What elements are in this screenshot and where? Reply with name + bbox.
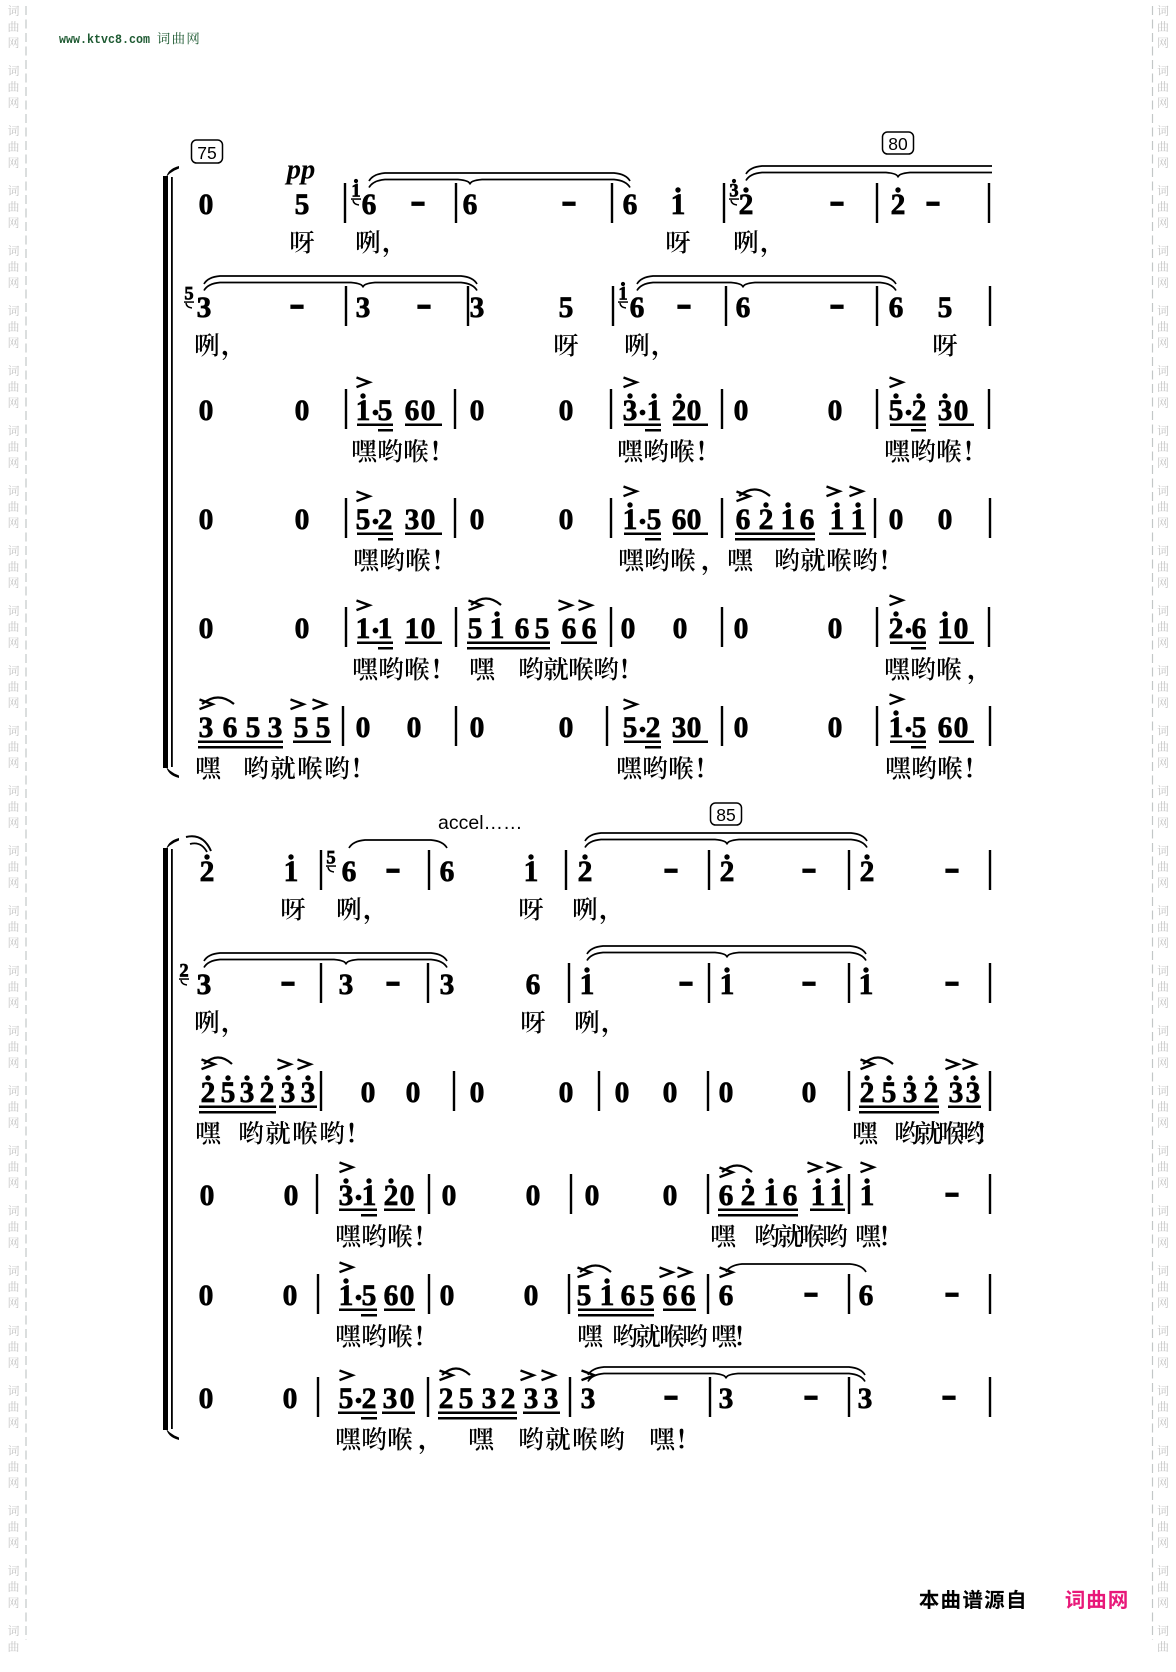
svg-text:1: 1 [764,1180,779,1212]
svg-text:1: 1 [362,1180,377,1212]
svg-text:3: 3 [383,1383,398,1415]
svg-text:3: 3 [268,712,283,744]
svg-text:accel……: accel…… [438,812,523,834]
svg-text:3: 3 [903,1077,918,1109]
svg-text:0: 0 [421,613,436,645]
svg-text:0: 0 [687,504,702,536]
svg-text:0: 0 [954,712,969,744]
svg-text:0: 0 [734,613,749,645]
svg-text:6: 6 [681,1280,696,1312]
svg-text:5: 5 [294,712,309,744]
svg-text:0: 0 [828,613,843,645]
svg-text:3: 3 [524,1383,539,1415]
svg-text:5: 5 [623,712,638,744]
svg-text:5: 5 [316,712,331,744]
svg-text:2: 2 [912,395,927,427]
svg-text:0: 0 [199,395,214,427]
svg-text:1: 1 [623,504,638,536]
svg-text:1: 1 [284,856,299,888]
svg-text:6: 6 [800,504,815,536]
svg-text:5: 5 [468,613,483,645]
svg-text:6: 6 [526,969,541,1001]
svg-text:3: 3 [858,1383,873,1415]
svg-text:1: 1 [647,395,662,427]
svg-text:0: 0 [283,1383,298,1415]
svg-text:5: 5 [938,292,953,324]
svg-text:0: 0 [470,1077,485,1109]
svg-text:3: 3 [301,1077,316,1109]
svg-text:0: 0 [559,712,574,744]
svg-text:5: 5 [339,1383,354,1415]
svg-text:0: 0 [673,613,688,645]
svg-text:3: 3 [281,1077,296,1109]
svg-text:1: 1 [889,712,904,744]
svg-text:2: 2 [646,712,661,744]
svg-text:3: 3 [719,1383,734,1415]
svg-text:0: 0 [585,1180,600,1212]
svg-text:85: 85 [716,805,735,825]
svg-text:1: 1 [378,613,393,645]
svg-text:6: 6 [630,292,645,324]
svg-text:0: 0 [199,189,214,221]
svg-text:2: 2 [924,1077,939,1109]
svg-text:0: 0 [440,1280,455,1312]
svg-text:0: 0 [421,504,436,536]
svg-text:www.ktvc8.com: www.ktvc8.com [59,33,150,47]
svg-text:0: 0 [199,1383,214,1415]
svg-text:5: 5 [912,712,927,744]
svg-text:1: 1 [859,969,874,1001]
svg-text:5: 5 [559,292,574,324]
svg-text:6: 6 [859,1280,874,1312]
svg-text:0: 0 [719,1077,734,1109]
svg-text:2: 2 [362,1383,377,1415]
svg-text:2: 2 [891,189,906,221]
svg-text:2: 2 [260,1077,275,1109]
svg-text:3: 3 [405,504,420,536]
svg-text:5: 5 [882,1077,897,1109]
svg-text:3: 3 [938,395,953,427]
svg-text:0: 0 [734,395,749,427]
svg-text:2: 2 [378,504,393,536]
svg-text:3: 3 [339,969,354,1001]
svg-text:1: 1 [938,613,953,645]
svg-text:0: 0 [615,1077,630,1109]
svg-text:0: 0 [295,395,310,427]
svg-text:2: 2 [759,504,774,536]
svg-text:1: 1 [811,1180,826,1212]
svg-text:6: 6 [621,1280,636,1312]
svg-text:1: 1 [600,1280,615,1312]
svg-text:3: 3 [356,292,371,324]
svg-text:3: 3 [197,292,212,324]
svg-text:5: 5 [577,1280,592,1312]
svg-text:6: 6 [912,613,927,645]
svg-text:0: 0 [734,712,749,744]
svg-text:0: 0 [200,1180,215,1212]
svg-text:3: 3 [966,1077,981,1109]
svg-text:1: 1 [405,613,420,645]
svg-text:0: 0 [283,1280,298,1312]
svg-text:0: 0 [663,1180,678,1212]
svg-text:6: 6 [672,504,687,536]
svg-text:3: 3 [623,395,638,427]
svg-text:0: 0 [889,504,904,536]
svg-text:5: 5 [647,504,662,536]
svg-text:0: 0 [687,712,702,744]
svg-text:2: 2 [860,856,875,888]
svg-text:0: 0 [199,613,214,645]
svg-text:0: 0 [400,1383,415,1415]
svg-text:6: 6 [889,292,904,324]
svg-text:0: 0 [470,504,485,536]
svg-text:3: 3 [470,292,485,324]
svg-text:0: 0 [687,395,702,427]
svg-text:3: 3 [339,1180,354,1212]
svg-text:5: 5 [889,395,904,427]
svg-text:5: 5 [295,189,310,221]
svg-text:0: 0 [407,712,422,744]
svg-text:5: 5 [362,1280,377,1312]
svg-text:3: 3 [544,1383,559,1415]
svg-text:2: 2 [860,1077,875,1109]
svg-text:2: 2 [889,613,904,645]
svg-text:6: 6 [938,712,953,744]
svg-text:1: 1 [830,1180,845,1212]
svg-text:80: 80 [888,134,908,154]
svg-text:1: 1 [524,856,539,888]
svg-text:2: 2 [200,856,215,888]
svg-text:2: 2 [578,856,593,888]
svg-text:0: 0 [559,1077,574,1109]
svg-text:1: 1 [356,613,371,645]
svg-text:5: 5 [459,1383,474,1415]
svg-text:0: 0 [938,504,953,536]
svg-text:6: 6 [719,1180,734,1212]
svg-text:75: 75 [197,143,216,163]
svg-text:1: 1 [851,504,866,536]
svg-text:0: 0 [199,504,214,536]
svg-text:6: 6 [582,613,597,645]
svg-text:2: 2 [439,1383,454,1415]
svg-text:0: 0 [559,395,574,427]
svg-text:5: 5 [640,1280,655,1312]
svg-text:6: 6 [663,1280,678,1312]
svg-text:0: 0 [400,1280,415,1312]
svg-text:6: 6 [623,189,638,221]
svg-text:2: 2 [501,1383,516,1415]
svg-text:0: 0 [802,1077,817,1109]
svg-text:6: 6 [223,712,238,744]
svg-text:2: 2 [384,1180,399,1212]
svg-text:0: 0 [470,712,485,744]
svg-text:3: 3 [581,1383,596,1415]
svg-text:1: 1 [356,395,371,427]
svg-text:2: 2 [739,189,754,221]
svg-text:0: 0 [295,613,310,645]
svg-text:pp: pp [284,155,316,186]
svg-text:2: 2 [720,856,735,888]
svg-text:5: 5 [221,1077,236,1109]
svg-text:6: 6 [736,292,751,324]
svg-text:0: 0 [828,395,843,427]
svg-text:0: 0 [199,1280,214,1312]
svg-text:0: 0 [621,613,636,645]
svg-text:6: 6 [736,504,751,536]
svg-text:5: 5 [535,613,550,645]
svg-text:6: 6 [562,613,577,645]
svg-text:6: 6 [719,1280,734,1312]
svg-text:0: 0 [406,1077,421,1109]
svg-text:0: 0 [361,1077,376,1109]
svg-text:0: 0 [284,1180,299,1212]
svg-text:0: 0 [421,395,436,427]
svg-text:6: 6 [384,1280,399,1312]
svg-text:6: 6 [342,856,357,888]
svg-text:6: 6 [440,856,455,888]
svg-text:0: 0 [356,712,371,744]
svg-text:0: 0 [470,395,485,427]
svg-text:1: 1 [860,1180,875,1212]
svg-text:0: 0 [524,1280,539,1312]
svg-text:5: 5 [378,395,393,427]
svg-text:0: 0 [400,1180,415,1212]
svg-text:2: 2 [741,1180,756,1212]
svg-text:2: 2 [201,1077,216,1109]
svg-text:3: 3 [240,1077,255,1109]
svg-text:6: 6 [783,1180,798,1212]
svg-text:3: 3 [197,969,212,1001]
svg-text:1: 1 [671,189,686,221]
svg-text:0: 0 [954,395,969,427]
svg-text:0: 0 [828,712,843,744]
svg-text:1: 1 [580,969,595,1001]
svg-text:5: 5 [246,712,261,744]
svg-text:1: 1 [830,504,845,536]
svg-text:3: 3 [199,712,214,744]
svg-text:1: 1 [490,613,505,645]
svg-text:0: 0 [663,1077,678,1109]
svg-text:6: 6 [362,189,377,221]
svg-text:3: 3 [949,1077,964,1109]
svg-text:3: 3 [440,969,455,1001]
svg-text:3: 3 [482,1383,497,1415]
svg-text:3: 3 [672,712,687,744]
svg-text:0: 0 [954,613,969,645]
svg-text:6: 6 [515,613,530,645]
svg-text:1: 1 [339,1280,354,1312]
svg-text:5: 5 [356,504,371,536]
svg-text:1: 1 [781,504,796,536]
svg-text:0: 0 [295,504,310,536]
svg-text:6: 6 [463,189,478,221]
svg-text:2: 2 [672,395,687,427]
svg-text:1: 1 [720,969,735,1001]
svg-text:0: 0 [559,504,574,536]
svg-text:0: 0 [442,1180,457,1212]
svg-text:0: 0 [526,1180,541,1212]
svg-text:6: 6 [405,395,420,427]
